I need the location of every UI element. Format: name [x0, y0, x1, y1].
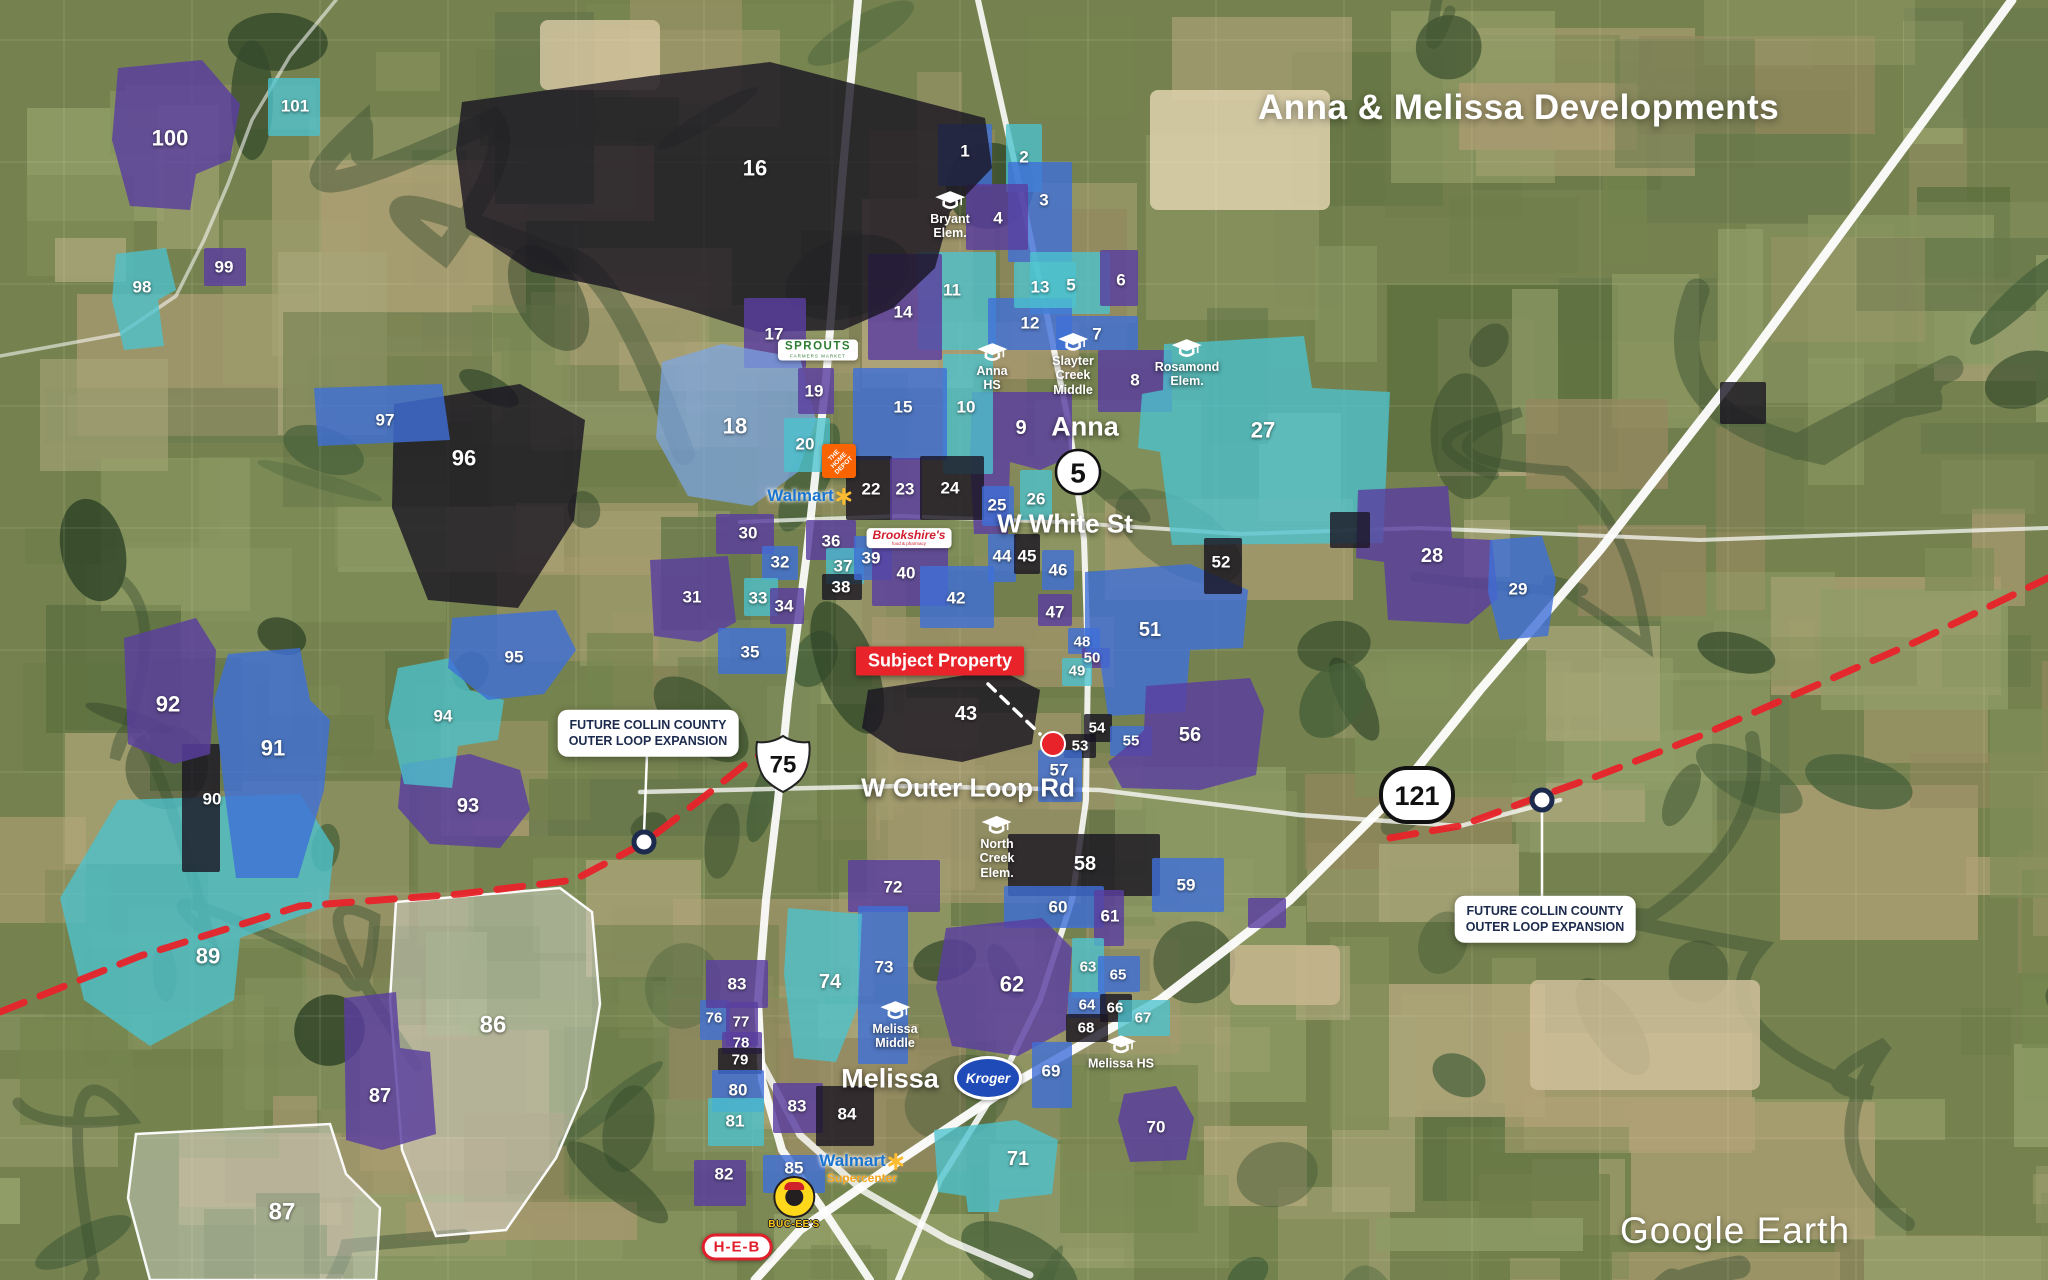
parcel-label-96: 96 — [452, 446, 476, 471]
parcel-label-77: 77 — [733, 1014, 750, 1031]
parcel-label-87: 87 — [369, 1085, 391, 1107]
parcel-label-91: 91 — [261, 736, 285, 761]
parcel-label-94: 94 — [434, 707, 453, 726]
parcel-label-10: 10 — [957, 398, 976, 417]
parcel-label-80: 80 — [729, 1081, 748, 1100]
parcel-label-58: 58 — [1074, 853, 1096, 875]
parcel-label-35: 35 — [741, 643, 760, 662]
parcel-label-55: 55 — [1123, 733, 1140, 750]
parcel-label-46: 46 — [1049, 561, 1068, 580]
parcel-label-22: 22 — [862, 480, 881, 499]
parcel-label-2: 2 — [1019, 148, 1028, 167]
parcel-label-38: 38 — [832, 578, 851, 597]
parcel-x101[interactable] — [1720, 382, 1766, 424]
future-loop-anchor-1 — [1532, 790, 1552, 810]
svg-text:5: 5 — [1070, 458, 1086, 489]
parcel-label-56: 56 — [1179, 724, 1201, 746]
parcel-label-67: 67 — [1135, 1010, 1152, 1027]
subject-property-dot[interactable] — [1041, 732, 1065, 756]
parcel-label-25: 25 — [988, 496, 1007, 515]
map-canvas[interactable]: 1234567891011121314151617181920222324252… — [0, 0, 2048, 1280]
map-vector-layer: 1234567891011121314151617181920222324252… — [0, 0, 2048, 1280]
parcel-label-43: 43 — [955, 703, 977, 725]
parcel-label-82: 82 — [715, 1165, 734, 1184]
parcel-label-57: 57 — [1050, 761, 1069, 780]
parcel-label-53: 53 — [1072, 738, 1089, 755]
parcel-label-71: 71 — [1007, 1148, 1029, 1170]
route-shield-121: 121 — [1381, 768, 1453, 822]
parcel-label-40: 40 — [897, 564, 916, 583]
parcel-label-12: 12 — [1021, 314, 1040, 333]
parcel-label-79: 79 — [732, 1052, 749, 1069]
parcel-label-18: 18 — [723, 414, 747, 439]
parcel-label-99: 99 — [215, 258, 234, 277]
google-earth-watermark: Google Earth — [1620, 1210, 1850, 1252]
parcel-label-97: 97 — [376, 411, 395, 430]
parcel-label-44: 44 — [993, 547, 1012, 566]
parcel-label-30: 30 — [739, 524, 758, 543]
parcel-label-78: 78 — [733, 1035, 750, 1052]
parcel-x100[interactable] — [1248, 898, 1286, 928]
parcel-label-6: 6 — [1116, 271, 1125, 290]
parcel-label-90: 90 — [203, 790, 222, 809]
parcel-label-65: 65 — [1110, 967, 1127, 984]
parcel-label-72: 72 — [884, 878, 903, 897]
parcel-label-33: 33 — [749, 589, 768, 608]
parcel-label-76: 76 — [706, 1010, 723, 1027]
parcel-label-60: 60 — [1049, 898, 1068, 917]
parcel-label-52: 52 — [1212, 553, 1231, 572]
parcel-label-15: 15 — [894, 398, 913, 417]
parcel-label-98: 98 — [133, 278, 152, 297]
parcel-label-59: 59 — [1177, 876, 1196, 895]
parcel-label-73: 73 — [875, 958, 894, 977]
parcel-label-92: 92 — [156, 692, 180, 717]
parcel-label-9: 9 — [1015, 417, 1026, 439]
future-loop-anchor-0 — [634, 832, 654, 852]
parcel-label-48: 48 — [1074, 634, 1091, 651]
parcel-label-45: 45 — [1018, 547, 1037, 566]
parcel-label-85: 85 — [785, 1159, 804, 1178]
parcel-label-17: 17 — [765, 325, 784, 344]
parcel-label-29: 29 — [1509, 580, 1528, 599]
subject-property-label: Subject Property — [856, 647, 1024, 676]
parcel-label-63: 63 — [1080, 959, 1097, 976]
parcel-label-49: 49 — [1069, 663, 1086, 680]
parcel-label-64: 64 — [1079, 997, 1096, 1014]
route-shield-5: 5 — [1056, 450, 1100, 494]
parcel-label-8: 8 — [1130, 371, 1139, 390]
parcel-label-89: 89 — [196, 944, 220, 969]
parcel-label-5: 5 — [1066, 276, 1075, 295]
parcel-label-37: 37 — [834, 557, 853, 576]
parcel-label-83: 83 — [728, 975, 747, 994]
parcel-label-28: 28 — [1421, 545, 1443, 567]
parcel-label-42: 42 — [947, 589, 966, 608]
parcel-label-81: 81 — [726, 1112, 745, 1131]
parcel-label-50: 50 — [1084, 650, 1101, 667]
parcel-label-26: 26 — [1027, 490, 1046, 509]
parcel-label-24: 24 — [941, 479, 960, 498]
parcel-label-100: 100 — [152, 126, 189, 151]
parcel-label-13: 13 — [1031, 278, 1050, 297]
parcel-label-23: 23 — [896, 480, 915, 499]
parcel-label-32: 32 — [771, 553, 790, 572]
parcel-label-27: 27 — [1251, 418, 1275, 443]
parcel-label-16: 16 — [743, 156, 767, 181]
parcel-label-62: 62 — [1000, 972, 1024, 997]
parcel-label-83: 83 — [788, 1097, 807, 1116]
parcel-label-31: 31 — [683, 588, 702, 607]
parcel-label-68: 68 — [1078, 1020, 1095, 1037]
parcel-label-7: 7 — [1092, 325, 1101, 344]
parcel-label-93: 93 — [457, 795, 479, 817]
map-title: Anna & Melissa Developments — [1258, 88, 1779, 128]
parcel-label-14: 14 — [894, 303, 913, 322]
parcel-label-84: 84 — [838, 1105, 857, 1124]
parcel-label-70: 70 — [1147, 1118, 1166, 1137]
parcel-label-47: 47 — [1046, 603, 1065, 622]
parcel-label-19: 19 — [805, 382, 824, 401]
parcel-x99[interactable] — [1330, 512, 1370, 548]
parcel-73[interactable] — [858, 906, 908, 1064]
parcel-label-39: 39 — [862, 549, 881, 568]
parcel-label-11: 11 — [943, 281, 961, 300]
parcel-label-101: 101 — [281, 97, 309, 116]
parcel-label-34: 34 — [775, 597, 794, 616]
svg-text:75: 75 — [770, 752, 797, 779]
parcel-label-86: 86 — [480, 1012, 507, 1039]
parcel-label-3: 3 — [1039, 191, 1048, 210]
parcel-label-36: 36 — [822, 532, 841, 551]
parcel-label-4: 4 — [993, 209, 1003, 228]
parcel-label-20: 20 — [796, 435, 815, 454]
parcel-label-69: 69 — [1042, 1062, 1061, 1081]
parcel-label-74: 74 — [819, 971, 842, 993]
parcel-label-61: 61 — [1101, 907, 1120, 926]
parcel-label-87: 87 — [269, 1199, 296, 1226]
svg-text:121: 121 — [1394, 781, 1439, 811]
parcel-label-66: 66 — [1107, 1000, 1124, 1017]
parcel-label-51: 51 — [1139, 619, 1161, 641]
parcel-label-95: 95 — [505, 648, 524, 667]
parcel-label-1: 1 — [960, 142, 969, 161]
parcel-label-54: 54 — [1089, 720, 1106, 737]
